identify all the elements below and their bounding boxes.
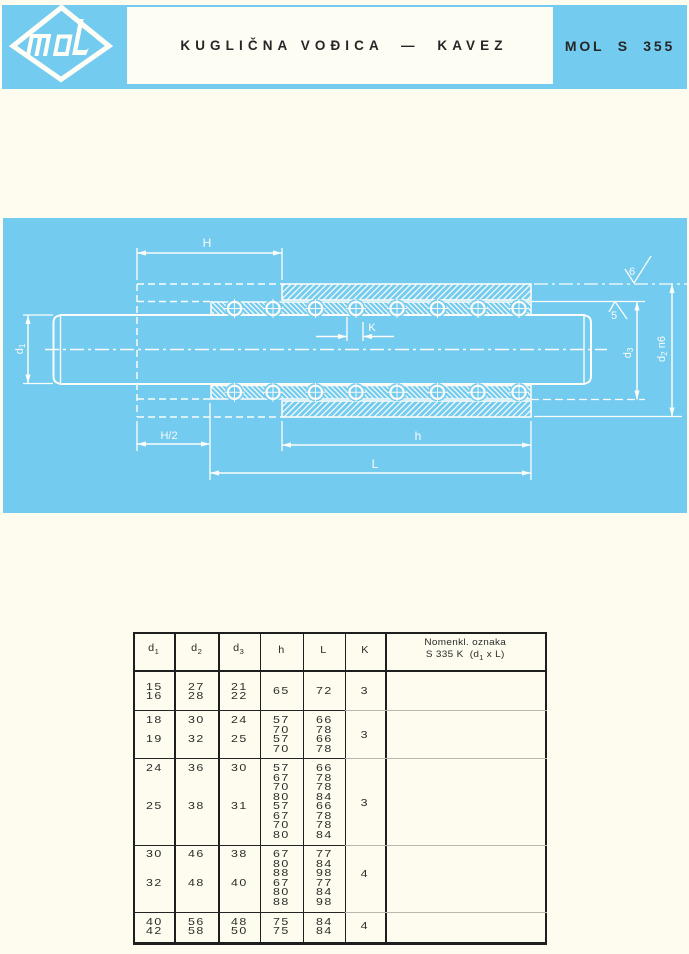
svg-text:L: L bbox=[372, 457, 379, 471]
svg-text:d2 n6: d2 n6 bbox=[656, 336, 669, 362]
svg-text:d3: d3 bbox=[622, 347, 635, 358]
svg-text:H/2: H/2 bbox=[160, 430, 177, 442]
svg-text:K: K bbox=[368, 322, 376, 334]
svg-text:h: h bbox=[415, 429, 422, 443]
svg-text:6: 6 bbox=[629, 266, 635, 278]
svg-text:H: H bbox=[203, 236, 212, 250]
svg-text:5: 5 bbox=[611, 310, 617, 322]
svg-text:d1: d1 bbox=[14, 343, 27, 354]
